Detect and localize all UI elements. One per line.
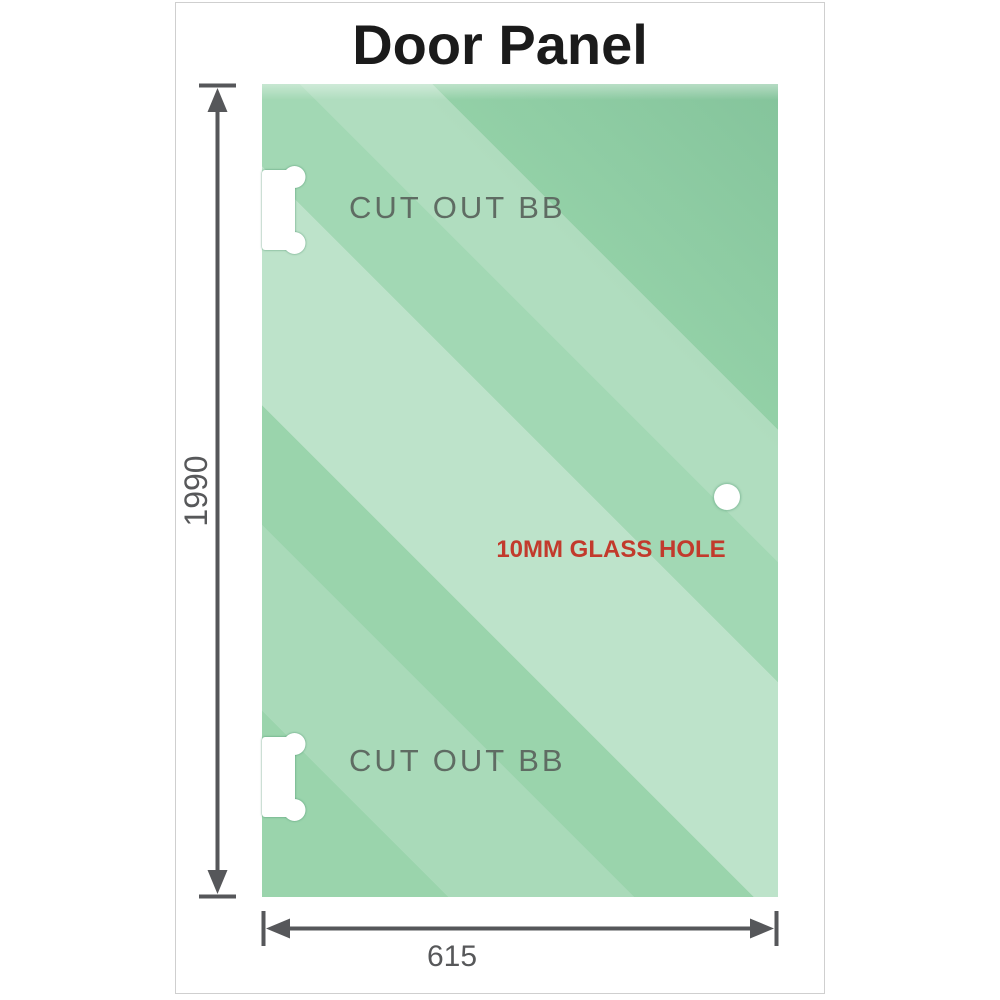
glass-panel: CUT OUT BB CUT OUT BB 10MM GLASS HOLE [262,84,778,897]
height-dimension-label: 1990 [179,441,213,541]
hinge-cutout-bottom-icon [262,732,310,824]
hinge-cutout-top-icon [262,165,310,257]
width-dimension-label: 615 [402,940,502,974]
glass-hole-icon [714,484,740,510]
glass-hole-label: 10MM GLASS HOLE [496,536,725,564]
page-title: Door Panel [175,12,825,77]
cutout-label-top: CUT OUT BB [349,189,566,227]
cutout-label-bottom: CUT OUT BB [349,742,566,780]
